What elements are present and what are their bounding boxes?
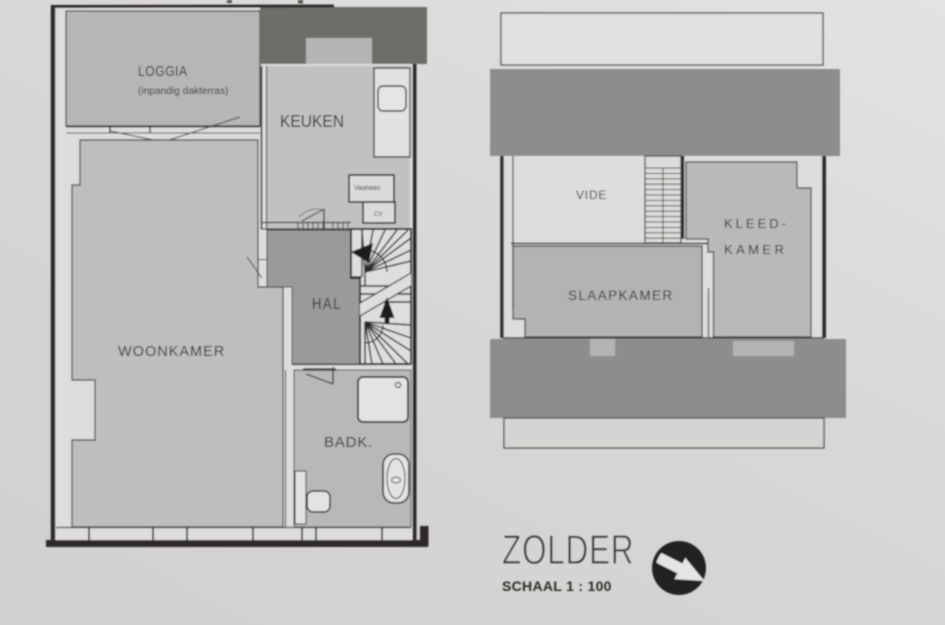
svg-text:ZOLDER: ZOLDER [502, 526, 634, 574]
svg-text:KEUKEN: KEUKEN [280, 111, 344, 131]
svg-text:Vaatwas: Vaatwas [354, 185, 381, 192]
svg-text:KLEED-: KLEED- [724, 216, 789, 231]
svg-text:VIDE: VIDE [576, 188, 607, 202]
svg-text:HAL: HAL [312, 296, 342, 314]
svg-text:KAMER: KAMER [724, 242, 787, 257]
svg-text:BADK.: BADK. [324, 434, 373, 451]
svg-text:SCHAAL 1 : 100: SCHAAL 1 : 100 [502, 578, 612, 594]
svg-text:LOGGIA: LOGGIA [138, 63, 188, 79]
svg-text:(inpandig dakterras): (inpandig dakterras) [138, 86, 228, 97]
svg-text:SLAAPKAMER: SLAAPKAMER [568, 288, 674, 303]
svg-text:CV: CV [374, 212, 382, 218]
svg-text:WOONKAMER: WOONKAMER [118, 344, 225, 360]
